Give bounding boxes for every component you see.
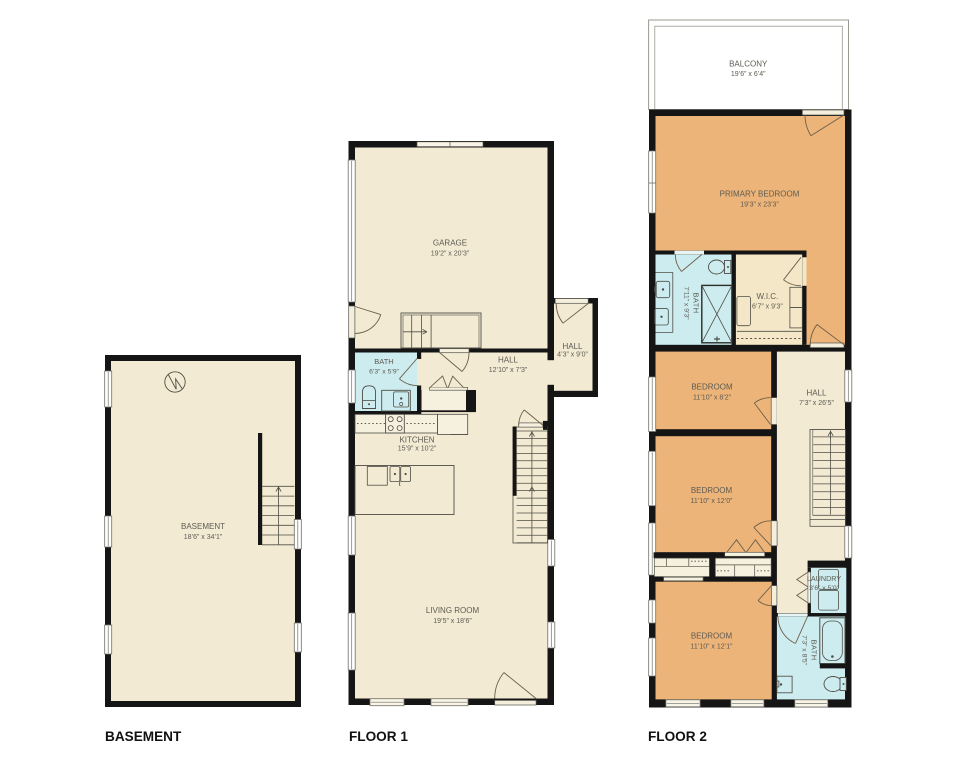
svg-text:11’10” x 12’0”: 11’10” x 12’0” bbox=[691, 498, 734, 505]
svg-text:HALL: HALL bbox=[806, 388, 827, 397]
svg-text:FLOOR 1: FLOOR 1 bbox=[349, 729, 408, 744]
svg-text:BATH: BATH bbox=[692, 292, 701, 313]
svg-text:7’11” x 9’3”: 7’11” x 9’3” bbox=[683, 286, 690, 320]
svg-text:BALCONY: BALCONY bbox=[729, 60, 768, 69]
svg-text:FLOOR 2: FLOOR 2 bbox=[648, 729, 707, 744]
svg-text:12’10” x 7’3”: 12’10” x 7’3” bbox=[489, 367, 528, 374]
svg-text:HALL: HALL bbox=[562, 342, 583, 351]
svg-text:19’5” x 18’6”: 19’5” x 18’6” bbox=[433, 618, 472, 625]
svg-text:PRIMARY BEDROOM: PRIMARY BEDROOM bbox=[720, 190, 800, 199]
svg-text:6’3” x 5’9”: 6’3” x 5’9” bbox=[369, 368, 400, 375]
svg-text:GARAGE: GARAGE bbox=[433, 239, 467, 248]
svg-text:11’10” x 12’1”: 11’10” x 12’1” bbox=[691, 644, 734, 651]
svg-text:KITCHEN: KITCHEN bbox=[399, 436, 434, 445]
svg-text:BEDROOM: BEDROOM bbox=[691, 383, 733, 392]
svg-text:19’6” x 6’4”: 19’6” x 6’4” bbox=[731, 71, 766, 78]
svg-text:7’3” x 26’5”: 7’3” x 26’5” bbox=[799, 400, 834, 407]
svg-text:3’6” x 5’0”: 3’6” x 5’0” bbox=[809, 585, 840, 592]
svg-text:W.I.C.: W.I.C. bbox=[757, 292, 779, 301]
svg-text:7’3” x 8’5”: 7’3” x 8’5” bbox=[801, 635, 808, 666]
svg-text:LAUNDRY: LAUNDRY bbox=[807, 574, 841, 583]
svg-text:BATH: BATH bbox=[374, 357, 393, 366]
svg-text:BASEMENT: BASEMENT bbox=[181, 522, 225, 531]
svg-text:BATH: BATH bbox=[810, 639, 819, 660]
svg-text:18’6” x 34’1”: 18’6” x 34’1” bbox=[184, 534, 223, 541]
svg-text:LIVING ROOM: LIVING ROOM bbox=[426, 606, 480, 615]
svg-text:11’10” x 8’2”: 11’10” x 8’2” bbox=[693, 395, 732, 402]
svg-text:19’2” x 20’3”: 19’2” x 20’3” bbox=[431, 251, 470, 258]
svg-text:HALL: HALL bbox=[498, 356, 519, 365]
svg-text:15’9” x 10’2”: 15’9” x 10’2” bbox=[398, 446, 437, 453]
svg-text:BEDROOM: BEDROOM bbox=[691, 632, 733, 641]
svg-text:BASEMENT: BASEMENT bbox=[105, 729, 182, 744]
svg-text:4’3” x 9’0”: 4’3” x 9’0” bbox=[557, 351, 588, 358]
svg-text:19’3” x 23’3”: 19’3” x 23’3” bbox=[740, 202, 779, 209]
svg-text:BEDROOM: BEDROOM bbox=[691, 486, 733, 495]
svg-text:6’7” x 9’3”: 6’7” x 9’3” bbox=[752, 304, 783, 311]
